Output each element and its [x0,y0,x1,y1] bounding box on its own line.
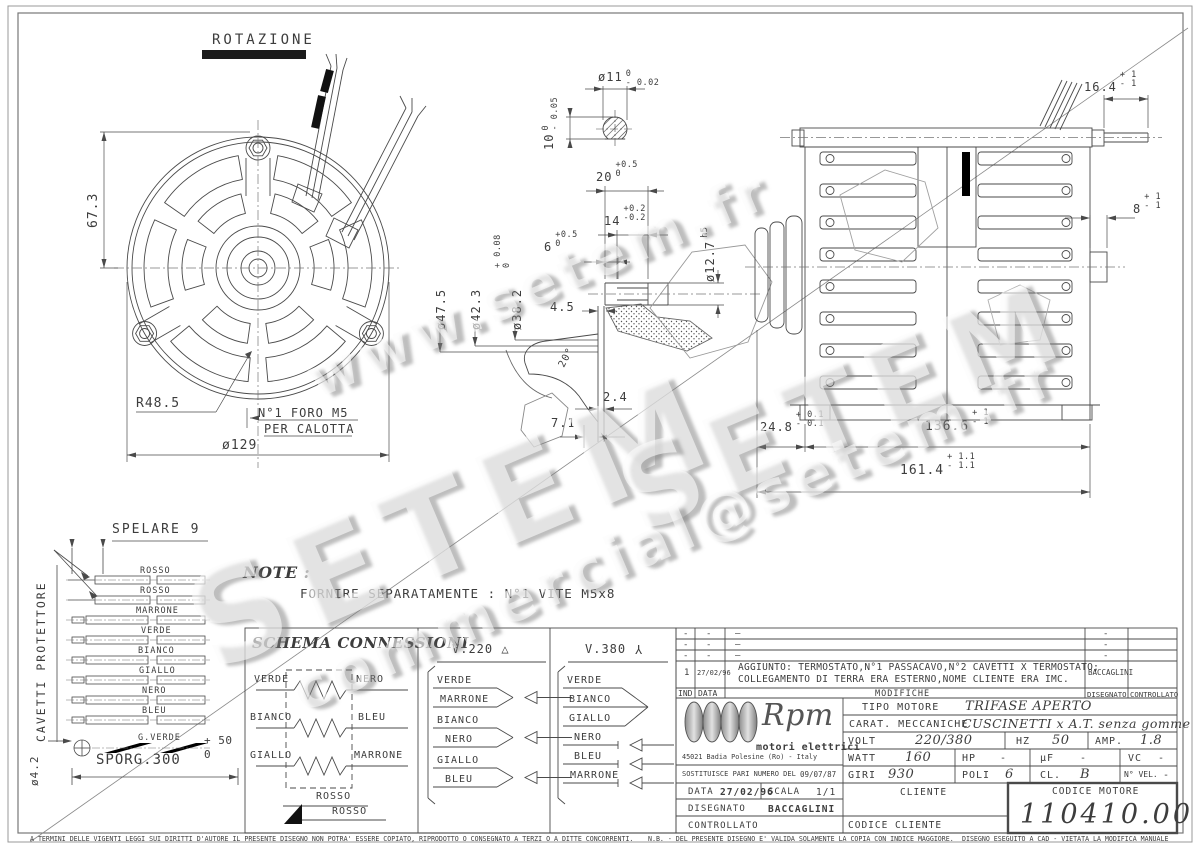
scala-value: 1/1 [816,787,836,798]
note-title: NOTE : [243,563,310,582]
mod-cell-dash: - [683,651,689,661]
schema-title: SCHEMA CONNESSIONI [252,634,469,652]
dim-value: 161.4 [900,463,944,478]
dim-value: 8 [1133,202,1141,216]
cliente-label: CLIENTE [900,787,947,798]
mod-cell-dash: - [1103,629,1109,639]
dim-radius-r485: R48.5 [136,396,180,411]
dim-shaft-d11: ø11 0- 0.02 [598,70,659,88]
giri-label: GIRI [848,770,876,781]
vc-value: - [1158,753,1165,764]
mod-row-index: 1 [684,668,690,678]
disclaimer-nb: N.B. - DEL PRESENTE DISEGNO E' VALIDA SO… [648,835,954,843]
mod-header-data: DATA [698,689,717,698]
dim-164: 16.4 + 1- 1 [1084,80,1137,98]
disegnato-label: DISEGNATO [688,804,746,814]
side-view-linework [755,80,1148,420]
dim-keyway-14: 14 +0.2-0.2 [604,214,646,232]
v380-wire-label: BIANCO [569,694,611,705]
mod-header-controllato: CONTROLLATO [1130,690,1178,699]
v380-wire-label: MARRONE [570,770,619,781]
strip-length-label: SPELARE 9 [112,522,200,537]
tolerance: 0- 0.02 [626,70,660,88]
dim-d42: ø4.2 [28,756,41,787]
resistor-left-label: GIALLO [250,750,292,761]
v220-wire-label: VERDE [437,675,472,686]
dim-248: 24.8 + 0.1- 0.1 [760,420,824,438]
v380-title: V.380 Y [585,642,643,656]
watt-label: WATT [848,753,876,764]
dim-d382: ø38.2 [510,289,524,330]
brand-name: Rpm [762,698,834,733]
data-value: 27/02/96 [720,787,774,798]
mod-cell-dash: — [735,629,741,639]
uf-label: µF [1040,753,1054,764]
scala-label: SCALA [768,787,800,797]
dim-value: ø12.7 [703,241,717,282]
v220-wire-label: NERO [445,734,473,745]
shaft-section-dim-lines [566,86,645,148]
sostituisce-date: 09/07/87 [800,770,836,779]
hz-value: 50 [1052,733,1070,748]
dim-value: ø11 [598,70,623,84]
resistor-left-label: VERDE [254,674,289,685]
giri-value: 930 [888,767,914,782]
mod-cell-dash: - [1103,651,1109,661]
dim-value: 24.8 [760,420,793,434]
v220-wire-label: MARRONE [440,694,489,705]
volt-value: 220/380 [915,733,973,748]
mod-row-text2: COLLEGAMENTO DI TERRA ERA ESTERNO,NOME C… [738,674,1069,685]
mod-header-disegnato: DISEGNATO [1087,690,1127,699]
dim-45: 4.5 [550,300,575,314]
wire-label: GIALLO [139,666,176,676]
data-label: DATA [688,787,714,797]
v380-wire-label: NERO [574,732,602,743]
dim-value: 136.6 [925,419,969,434]
front-view-linework [127,50,426,399]
mod-cell-dash: - [706,651,712,661]
rotation-title: ROTAZIONE [212,32,315,48]
side-view-centerlines [745,138,1162,268]
tolerance: + 1.1- 1.1 [947,453,975,471]
schema-box-lines [245,628,676,833]
protrusion-tolerance: + 500 [204,734,233,762]
mod-cell-dash: - [683,640,689,650]
controllato-label: CONTROLLATO [688,821,759,831]
shaft-section-linework [596,110,634,148]
dim-d475: ø47.5 [434,289,448,330]
tolerance: +0.50 [615,161,637,179]
dim-value: 10 [542,134,556,150]
note-body: FORNIRE SEPARATAMENTE : N°1 VITE M5x8 [300,586,615,601]
disegnato-value: BACCAGLINI [768,804,835,815]
nvel-label: N° VEL. [1124,770,1158,779]
v220-wire-label: BLEU [445,774,473,785]
codice-cliente-label: CODICE CLIENTE [848,820,942,831]
tolerance: +0.2-0.2 [623,205,645,223]
resistor-right-label: NERO [356,674,384,685]
hp-label: HP [962,753,976,764]
tolerance: + 1- 1 [1120,71,1137,89]
codice-motore-value: 110410.00 [1020,799,1193,830]
protrusion-label: SPORG.300 [96,752,181,768]
star-symbol: Y [634,642,642,656]
hz-label: HZ [1016,736,1030,747]
dim-8: 8 + 1- 1 [1133,202,1161,220]
watt-value: 160 [905,750,931,765]
dim-1614: 161.4 + 1.1- 1.1 [900,463,975,481]
codice-motore-label: CODICE MOTORE [1052,786,1139,797]
v380-wire-label: GIALLO [569,713,611,724]
resistor-left-label: BIANCO [250,712,292,723]
wire-label: MARRONE [136,606,179,616]
amp-label: AMP. [1095,736,1123,747]
uf-value: - [1080,753,1087,764]
drawing-sheet: ROTAZIONE NOTE : FORNIRE SEPARATAMENTE :… [0,0,1200,849]
dim-71: 7.1 [551,416,576,430]
mod-header-modifiche: MODIFICHE [875,689,930,699]
cl-value: B [1080,767,1090,782]
v220-wire-label: GIALLO [437,755,479,766]
tolerance: + 0.1- 0.1 [796,411,824,429]
wire-label: BLEU [142,706,166,716]
brand-subtitle: motori elettrici [756,742,860,753]
dim-value: 6 [544,240,552,254]
mod-cell-dash: - [706,629,712,639]
dim-keyway-20: 20 +0.50 [596,170,638,188]
dim-1366: 136.6 + 1- 1 [925,419,989,437]
mod-cell-dash: — [735,651,741,661]
dim-d382-tolerance: + 0.080 [494,234,512,268]
carat-label: CARAT. MECCANICHE [849,719,968,730]
carat-value: CUSCINETTI x A.T. senza gomme [962,716,1191,731]
delta-symbol: △ [501,642,509,656]
disclaimer-copyright: A TERMINI DELLE VIGENTI LEGGI SUI DIRITT… [30,835,633,843]
front-view-centerlines [114,120,400,468]
wire-label: BIANCO [138,646,175,656]
hp-value: - [1000,753,1007,764]
dim-keyway-6: 6 +0.50 [544,240,578,258]
dim-value: 14 [604,214,620,228]
dim-value: 16.4 [1084,80,1117,94]
mod-cell-dash: - [1103,640,1109,650]
brand-address: 45021 Badia Polesine (Ro) - Italy [682,753,817,761]
mod-cell-dash: — [735,640,741,650]
v220-wire-label: BIANCO [437,715,479,726]
mod-row-date: 27/02/96 [697,669,731,677]
dim-24: 2.4 [603,390,628,404]
cl-label: CL. [1040,770,1061,781]
thermostat-wire-label: ROSSO [316,791,351,802]
nvel-value: - [1163,770,1170,781]
tolerance: 0- 0.05 [542,97,560,131]
wire-label: NERO [142,686,166,696]
disclaimer-cad: DISEGNO ESEGUITO A CAD - VIETATA LA MODI… [962,835,1168,843]
mod-cell-dash: - [706,640,712,650]
mod-cell-dash: - [683,629,689,639]
hole-note-line1: N°1 FORO M5 [258,406,348,420]
hole-note-line2: PER CALOTTA [264,422,354,436]
dim-height-67: 67.3 [86,193,101,228]
wire-label: ROSSO [140,586,171,596]
wire-label: G.VERDE [138,733,181,743]
mod-header-ind: IND [678,689,692,698]
dim-shaft-d127: ø12.7 h5 [703,227,717,282]
fit-class: h5 [700,227,710,238]
wire-label: ROSSO [140,566,171,576]
amp-value: 1.8 [1140,733,1162,748]
poli-value: 6 [1005,767,1014,782]
wire-label: VERDE [141,626,172,636]
thermostat-wire-label: ROSSO [332,806,367,817]
dim-d423: ø42.3 [469,289,483,330]
v380-wire-label: BLEU [574,751,602,762]
resistor-right-label: BLEU [358,712,386,723]
mod-row-text1: AGGIUNTO: TERMOSTATO,N°1 PASSACAVO,N°2 C… [738,662,1099,673]
v220-title: V.220 △ [452,642,510,656]
tolerance: + 1- 1 [1144,193,1161,211]
poli-label: POLI [962,770,990,781]
dim-diameter-129: ø129 [222,438,257,453]
tolerance: + 1- 1 [972,409,989,427]
protective-cables-label: CAVETTI PROTETTORE [34,581,48,742]
volt-label: VOLT [848,736,876,747]
tipo-motore-label: TIPO MOTORE [862,702,939,713]
tolerance: +0.50 [555,231,577,249]
dim-shaft-d10: 10 0- 0.05 [542,97,560,150]
vc-label: VC [1128,753,1142,764]
sostituisce-label: SOSTITUISCE PARI NUMERO DEL [682,770,796,778]
dim-value: 20 [596,170,612,184]
mod-row-author: BACCAGLINI [1088,668,1133,677]
tipo-motore-value: TRIFASE APERTO [965,699,1092,714]
resistor-right-label: MARRONE [354,750,403,761]
v380-wire-label: VERDE [567,675,602,686]
